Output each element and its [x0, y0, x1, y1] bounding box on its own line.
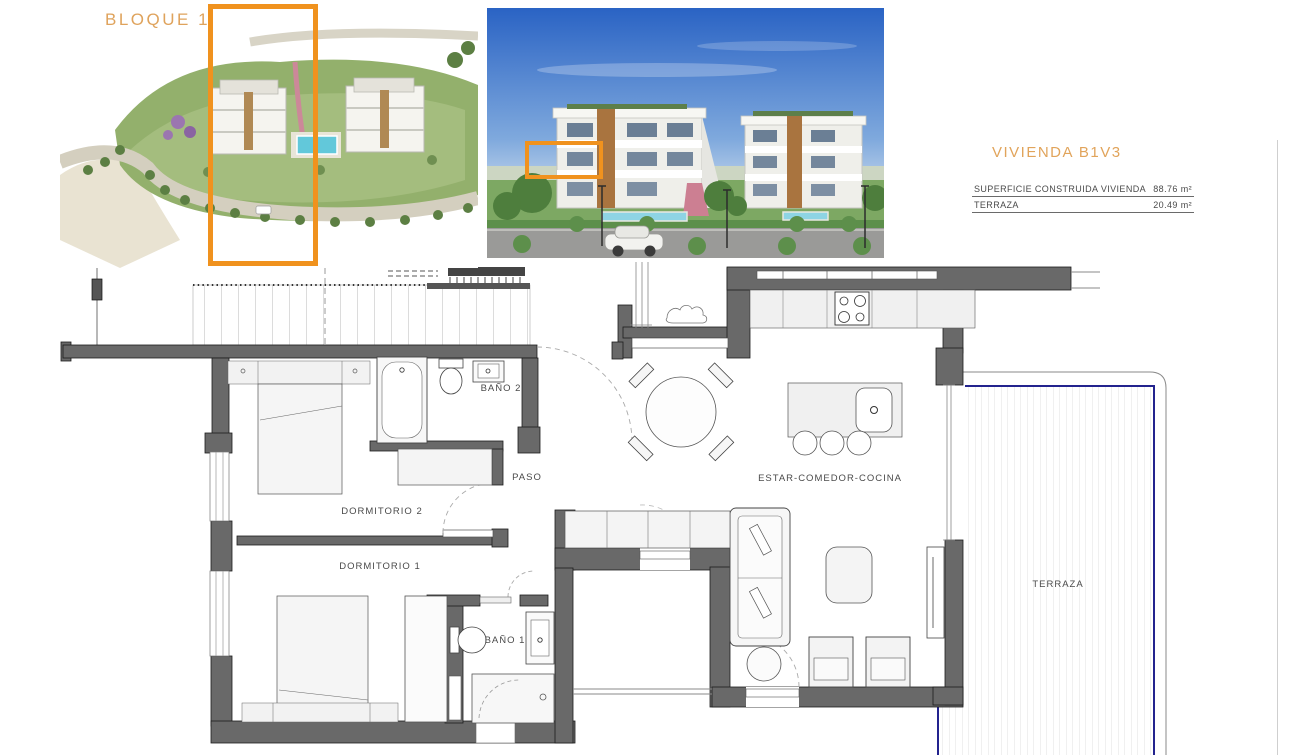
room-label-terraza: TERRAZA — [1032, 579, 1083, 590]
photo-building-2 — [741, 111, 866, 208]
bathroom1-fixtures — [450, 612, 554, 723]
room-label-dormitorio2: DORMITORIO 2 — [341, 506, 423, 517]
kitchen-island — [788, 383, 902, 455]
room-label-paso: PASO — [512, 472, 542, 483]
fence-post — [92, 262, 102, 345]
unit-title: VIVIENDA B1V3 — [992, 144, 1194, 161]
coffee-table — [826, 547, 872, 603]
aerial-highlight-box — [208, 4, 318, 266]
unit-info-table: SUPERFICIE CONSTRUIDA VIVIENDA 88.76 m² … — [972, 181, 1194, 213]
sheet-fold-line — [1277, 140, 1278, 755]
dining-table — [628, 363, 733, 461]
pergola-louvres — [193, 267, 530, 345]
block-label: BLOQUE 1 — [105, 10, 210, 30]
table-row: SUPERFICIE CONSTRUIDA VIVIENDA 88.76 m² — [972, 181, 1194, 197]
paso-closet — [565, 511, 730, 548]
aerial-render-image: BLOQUE 1 — [60, 0, 478, 268]
side-table — [747, 647, 781, 681]
plan-sheet: { "overview": { "block_label": "BLOQUE 1… — [0, 0, 1290, 755]
table-row: TERRAZA 20.49 m² — [972, 197, 1194, 213]
bed-dorm2 — [228, 361, 370, 494]
sofa — [730, 508, 790, 646]
room-label-dormitorio1: DORMITORIO 1 — [339, 561, 421, 572]
row-label: SUPERFICIE CONSTRUIDA VIVIENDA — [974, 184, 1146, 194]
elevation-photo-art — [487, 8, 884, 258]
elevation-highlight-box — [525, 141, 603, 179]
unit-info-panel: VIVIENDA B1V3 SUPERFICIE CONSTRUIDA VIVI… — [972, 144, 1194, 213]
row-value: 20.49 m² — [1153, 200, 1192, 210]
entry-bench — [666, 305, 707, 323]
elevation-photo-image — [487, 8, 884, 258]
room-label-estar: ESTAR-COMEDOR-COCINA — [758, 473, 902, 484]
wardrobe-dorm1 — [405, 596, 447, 722]
bathroom2-fixtures — [377, 357, 504, 443]
aerial-building-2 — [346, 78, 424, 152]
terrace-deck — [938, 372, 1166, 755]
bed-dorm1 — [242, 596, 398, 722]
tv-unit — [927, 547, 944, 638]
room-label-bano2: BAÑO 2 — [481, 383, 522, 394]
kitchen-counter — [750, 290, 975, 328]
armchairs — [809, 637, 910, 687]
row-label: TERRAZA — [974, 200, 1019, 210]
dorm2-closet — [398, 449, 492, 485]
room-label-bano1: BAÑO 1 — [485, 635, 526, 646]
row-value: 88.76 m² — [1153, 184, 1192, 194]
